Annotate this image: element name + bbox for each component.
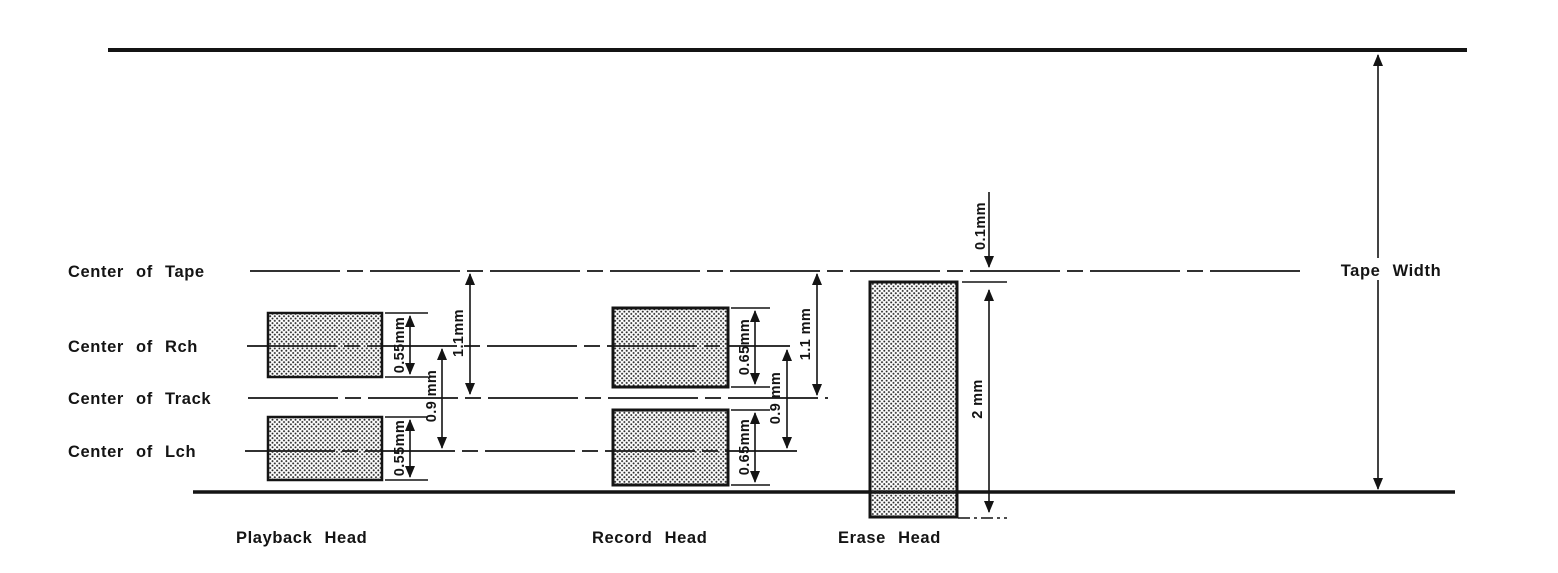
dim-label-playback-rch-width: 0.55mm bbox=[392, 317, 408, 373]
dim-label-playback-track-pitch: 0.9 mm bbox=[424, 370, 440, 422]
label-playback-head: Playback Head bbox=[236, 529, 367, 547]
label-center-of-rch: Center of Rch bbox=[68, 338, 198, 356]
dim-label-record-lch-width: 0.65mm bbox=[737, 419, 753, 475]
dim-label-record-rch-width: 0.65mm bbox=[737, 319, 753, 375]
label-tape-width: Tape Width bbox=[1341, 262, 1442, 280]
label-center-of-tape: Center of Tape bbox=[68, 263, 205, 281]
playback-head-rch-block bbox=[268, 313, 382, 377]
playback-head-lch-block bbox=[268, 417, 382, 480]
diagram-canvas: Center of Tape Center of Rch Center of T… bbox=[0, 0, 1558, 573]
tape-head-track-diagram: Center of Tape Center of Rch Center of T… bbox=[0, 0, 1558, 573]
dim-label-playback-center-offset: 1.1mm bbox=[451, 309, 467, 357]
record-head-lch-block bbox=[613, 410, 728, 485]
dim-label-erase-top-gap: 0.1mm bbox=[973, 202, 989, 250]
dim-label-record-center-offset: 1.1 mm bbox=[798, 308, 814, 360]
record-head-rch-block bbox=[613, 308, 728, 387]
label-center-of-lch: Center of Lch bbox=[68, 443, 196, 461]
label-center-of-track: Center of Track bbox=[68, 390, 211, 408]
dim-label-erase-height: 2 mm bbox=[970, 379, 986, 418]
label-record-head: Record Head bbox=[592, 529, 707, 547]
dim-label-playback-lch-width: 0.55mm bbox=[392, 420, 408, 476]
label-erase-head: Erase Head bbox=[838, 529, 941, 547]
erase-head-block bbox=[870, 282, 957, 517]
dim-label-record-track-pitch: 0.9 mm bbox=[768, 372, 784, 424]
